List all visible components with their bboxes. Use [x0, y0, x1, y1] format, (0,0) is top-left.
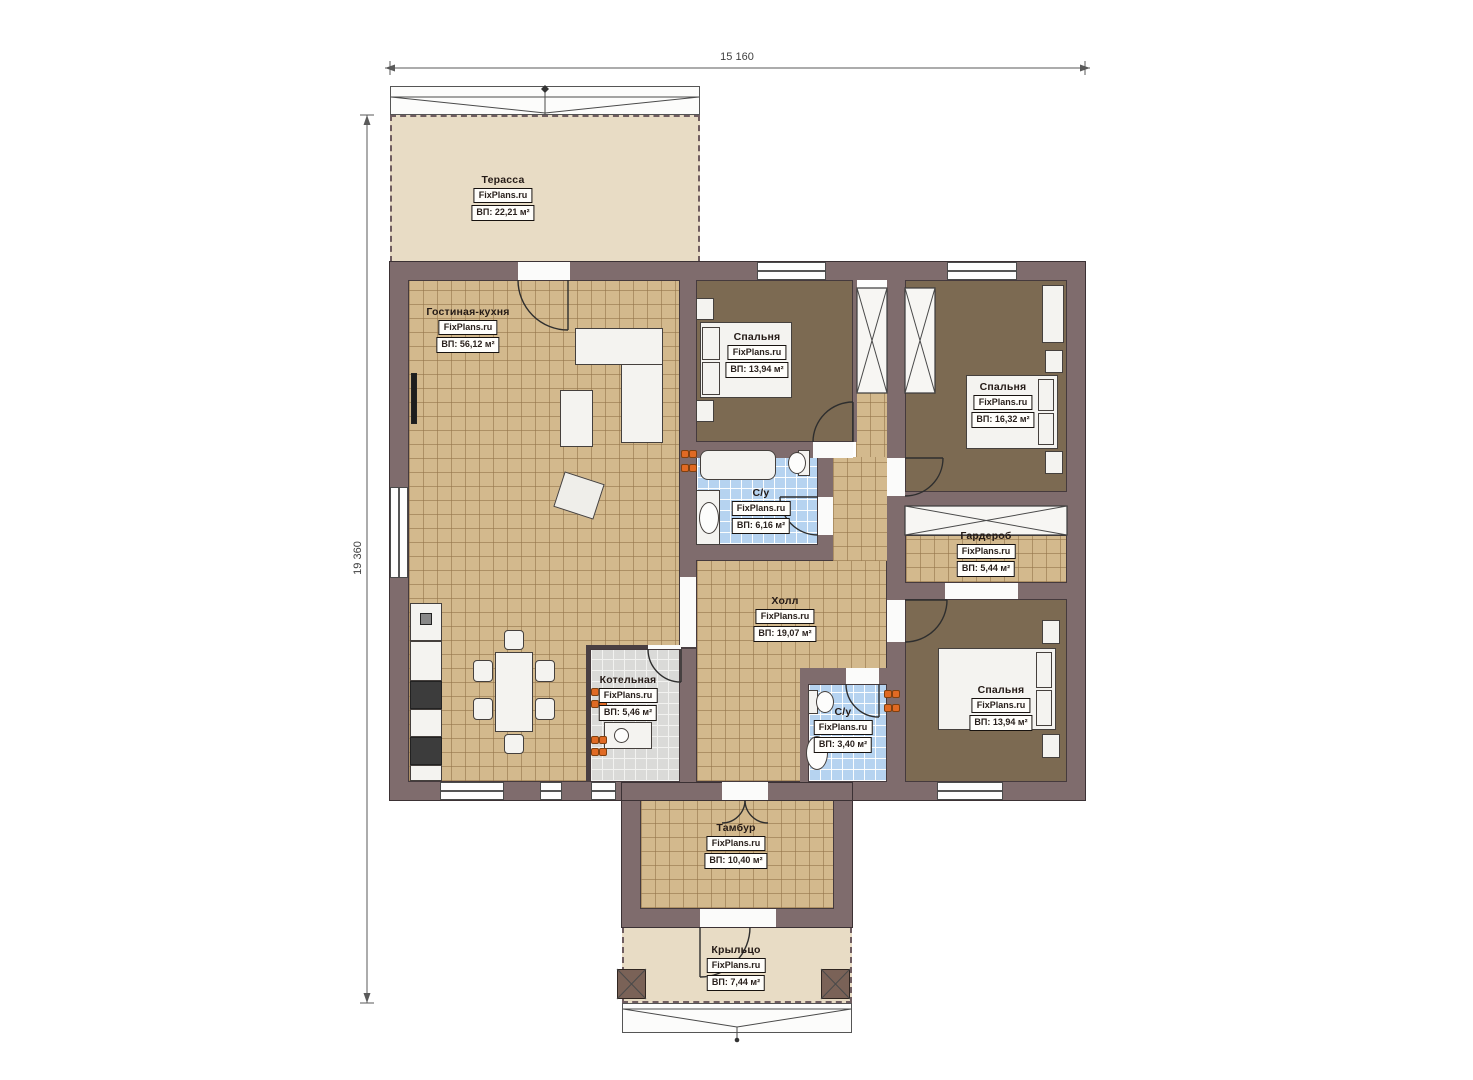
vestibule-wall-left: [622, 782, 640, 927]
wall-bathroom1-south: [696, 545, 833, 560]
bedroom1-window: [757, 262, 826, 280]
wardrobe-cabinet: [857, 288, 887, 393]
radiator: [689, 450, 697, 458]
radiator: [884, 704, 892, 712]
boiler-door-opening: [648, 645, 681, 649]
wall-bedroom1-east: [853, 280, 857, 442]
bedroom2-door-opening: [887, 458, 905, 496]
dimension-width-label: 15 160: [720, 51, 754, 63]
brand-box: FixPlans.ru: [972, 698, 1031, 713]
kitchen-counter-1: [410, 641, 442, 681]
living-window-west: [390, 487, 408, 578]
brand-box: FixPlans.ru: [814, 720, 873, 735]
wall-bedroom2-south: [905, 492, 1067, 506]
brand-box: FixPlans.ru: [474, 188, 533, 203]
bedroom2-window: [947, 262, 1017, 280]
room-label-living-kitchen: Гостиная-кухня FixPlans.ru ВП: 56,12 м²: [426, 306, 509, 353]
nightstand: [1042, 620, 1060, 644]
room-label-boiler: Котельная FixPlans.ru ВП: 5,46 м²: [599, 674, 658, 721]
toilet-bowl: [788, 452, 806, 474]
room-label-terrace: Терасса FixPlans.ru ВП: 22,21 м²: [471, 174, 534, 221]
sofa-corner: [621, 364, 663, 443]
terrace-floor: [390, 115, 700, 262]
radiator: [681, 450, 689, 458]
porch-awning: [622, 1003, 852, 1033]
room-label-hall: Холл FixPlans.ru ВП: 19,07 м²: [753, 595, 816, 642]
area-box: ВП: 16,32 м²: [971, 412, 1034, 427]
sink: [699, 502, 719, 534]
sofa: [575, 328, 663, 365]
area-box: ВП: 3,40 м²: [814, 737, 872, 752]
kitchen-window-south: [591, 782, 616, 800]
kitchen-counter-2: [410, 709, 442, 737]
wall-boiler-west: [586, 645, 590, 782]
room-label-bedroom-2: Спальня FixPlans.ru ВП: 16,32 м²: [971, 381, 1034, 428]
room-label-vestibule: Тамбур FixPlans.ru ВП: 10,40 м²: [704, 822, 767, 869]
brand-box: FixPlans.ru: [707, 836, 766, 851]
kitchen-microwave: [420, 613, 432, 625]
boiler-unit: [599, 748, 607, 756]
area-box: ВП: 56,12 м²: [436, 337, 499, 352]
bed-pillow: [1038, 413, 1054, 445]
room-name: Холл: [753, 595, 816, 607]
vestibule-wall-right: [834, 782, 852, 927]
room-label-bathroom-1: С/у FixPlans.ru ВП: 6,16 м²: [732, 487, 791, 534]
nightstand: [1045, 350, 1063, 373]
nightstand: [696, 400, 714, 422]
wall-bathroom2-west: [800, 668, 808, 782]
terrace-roof-overhang: [390, 86, 700, 115]
bed-pillow: [1036, 690, 1052, 726]
bathtub: [700, 450, 776, 480]
porch-post: [617, 969, 646, 999]
area-box: ВП: 7,44 м²: [707, 975, 765, 990]
bathroom2-door-opening: [846, 668, 879, 684]
vestibule-door-opening: [722, 782, 768, 800]
brand-box: FixPlans.ru: [728, 345, 787, 360]
bed-pillow: [702, 327, 720, 360]
dimension-height-label: 19 360: [352, 541, 364, 575]
nightstand: [696, 298, 714, 320]
room-name: Крыльцо: [707, 944, 766, 956]
terrace-door-opening: [518, 262, 570, 280]
bedroom1-door-opening: [813, 442, 853, 458]
bedroom3-door-opening: [887, 600, 905, 642]
room-label-bathroom-2: С/у FixPlans.ru ВП: 3,40 м²: [814, 706, 873, 753]
dining-chair: [504, 734, 524, 754]
vestibule-wall-bottom-east: [776, 909, 852, 927]
area-box: ВП: 10,40 м²: [704, 853, 767, 868]
room-name: С/у: [732, 487, 791, 499]
room-name: Спальня: [725, 331, 788, 343]
area-box: ВП: 13,94 м²: [969, 715, 1032, 730]
room-label-wardrobe: Гардероб FixPlans.ru ВП: 5,44 м²: [957, 530, 1016, 577]
room-label-bedroom-1: Спальня FixPlans.ru ВП: 13,94 м²: [725, 331, 788, 378]
tv: [411, 373, 417, 424]
boiler-unit: [591, 748, 599, 756]
dining-table: [495, 652, 533, 732]
room-name: Гостиная-кухня: [426, 306, 509, 318]
brand-box: FixPlans.ru: [974, 395, 1033, 410]
brand-box: FixPlans.ru: [439, 320, 498, 335]
room-name: Котельная: [599, 674, 658, 686]
porch-door-opening: [700, 909, 776, 927]
nightstand: [1045, 451, 1063, 474]
wall-living-hall: [680, 280, 696, 782]
bed-pillow: [1038, 379, 1054, 411]
radiator: [892, 704, 900, 712]
kitchen-counter-3: [410, 765, 442, 781]
room-name: Терасса: [471, 174, 534, 186]
awning-marker: [735, 1038, 740, 1043]
boiler-unit: [591, 736, 599, 744]
area-box: ВП: 19,07 м²: [753, 626, 816, 641]
dining-chair: [535, 660, 555, 682]
boiler-sink: [614, 728, 629, 743]
porch-post: [821, 969, 850, 999]
boiler-unit: [599, 736, 607, 744]
radiator: [884, 690, 892, 698]
room-label-bedroom-3: Спальня FixPlans.ru ВП: 13,94 м²: [969, 684, 1032, 731]
brand-box: FixPlans.ru: [707, 958, 766, 973]
area-box: ВП: 13,94 м²: [725, 362, 788, 377]
dresser: [1042, 285, 1064, 343]
room-name: Спальня: [971, 381, 1034, 393]
hall-alcove-floor-b: [833, 457, 887, 561]
room-name: Гардероб: [957, 530, 1016, 542]
living-window-south: [440, 782, 504, 800]
vestibule-wall-bottom-west: [622, 909, 700, 927]
bedroom3-window: [937, 782, 1003, 800]
radiator: [892, 690, 900, 698]
brand-box: FixPlans.ru: [732, 501, 791, 516]
wall-right: [1067, 262, 1085, 800]
nightstand: [1042, 734, 1060, 758]
room-name: С/у: [814, 706, 873, 718]
dining-chair: [535, 698, 555, 720]
living-window-south-small: [540, 782, 562, 800]
brand-box: FixPlans.ru: [756, 609, 815, 624]
radiator: [681, 464, 689, 472]
bathroom1-door-opening: [818, 497, 833, 535]
area-box: ВП: 5,44 м²: [957, 561, 1015, 576]
room-name: Тамбур: [704, 822, 767, 834]
brand-box: FixPlans.ru: [957, 544, 1016, 559]
room-label-porch: Крыльцо FixPlans.ru ВП: 7,44 м²: [707, 944, 766, 991]
room-name: Спальня: [969, 684, 1032, 696]
hall-alcove-floor-a: [856, 393, 887, 459]
wall-bottom-east: [768, 782, 1085, 800]
dining-chair: [504, 630, 524, 650]
bed-pillow: [1036, 652, 1052, 688]
radiator: [689, 464, 697, 472]
kitchen-stove: [410, 681, 442, 709]
floor-plan: 15 160 19 360 Терасса FixPlans.ru ВП: 22…: [0, 0, 1473, 1080]
coffee-table: [560, 390, 593, 447]
brand-box: FixPlans.ru: [599, 688, 658, 703]
kitchen-oven: [410, 737, 442, 765]
area-box: ВП: 5,46 м²: [599, 705, 657, 720]
dining-chair: [473, 698, 493, 720]
area-box: ВП: 6,16 м²: [732, 518, 790, 533]
dining-chair: [473, 660, 493, 682]
living-hall-opening: [680, 577, 696, 647]
area-box: ВП: 22,21 м²: [471, 205, 534, 220]
wardrobe-opening: [945, 583, 1018, 599]
bed-pillow: [702, 362, 720, 395]
